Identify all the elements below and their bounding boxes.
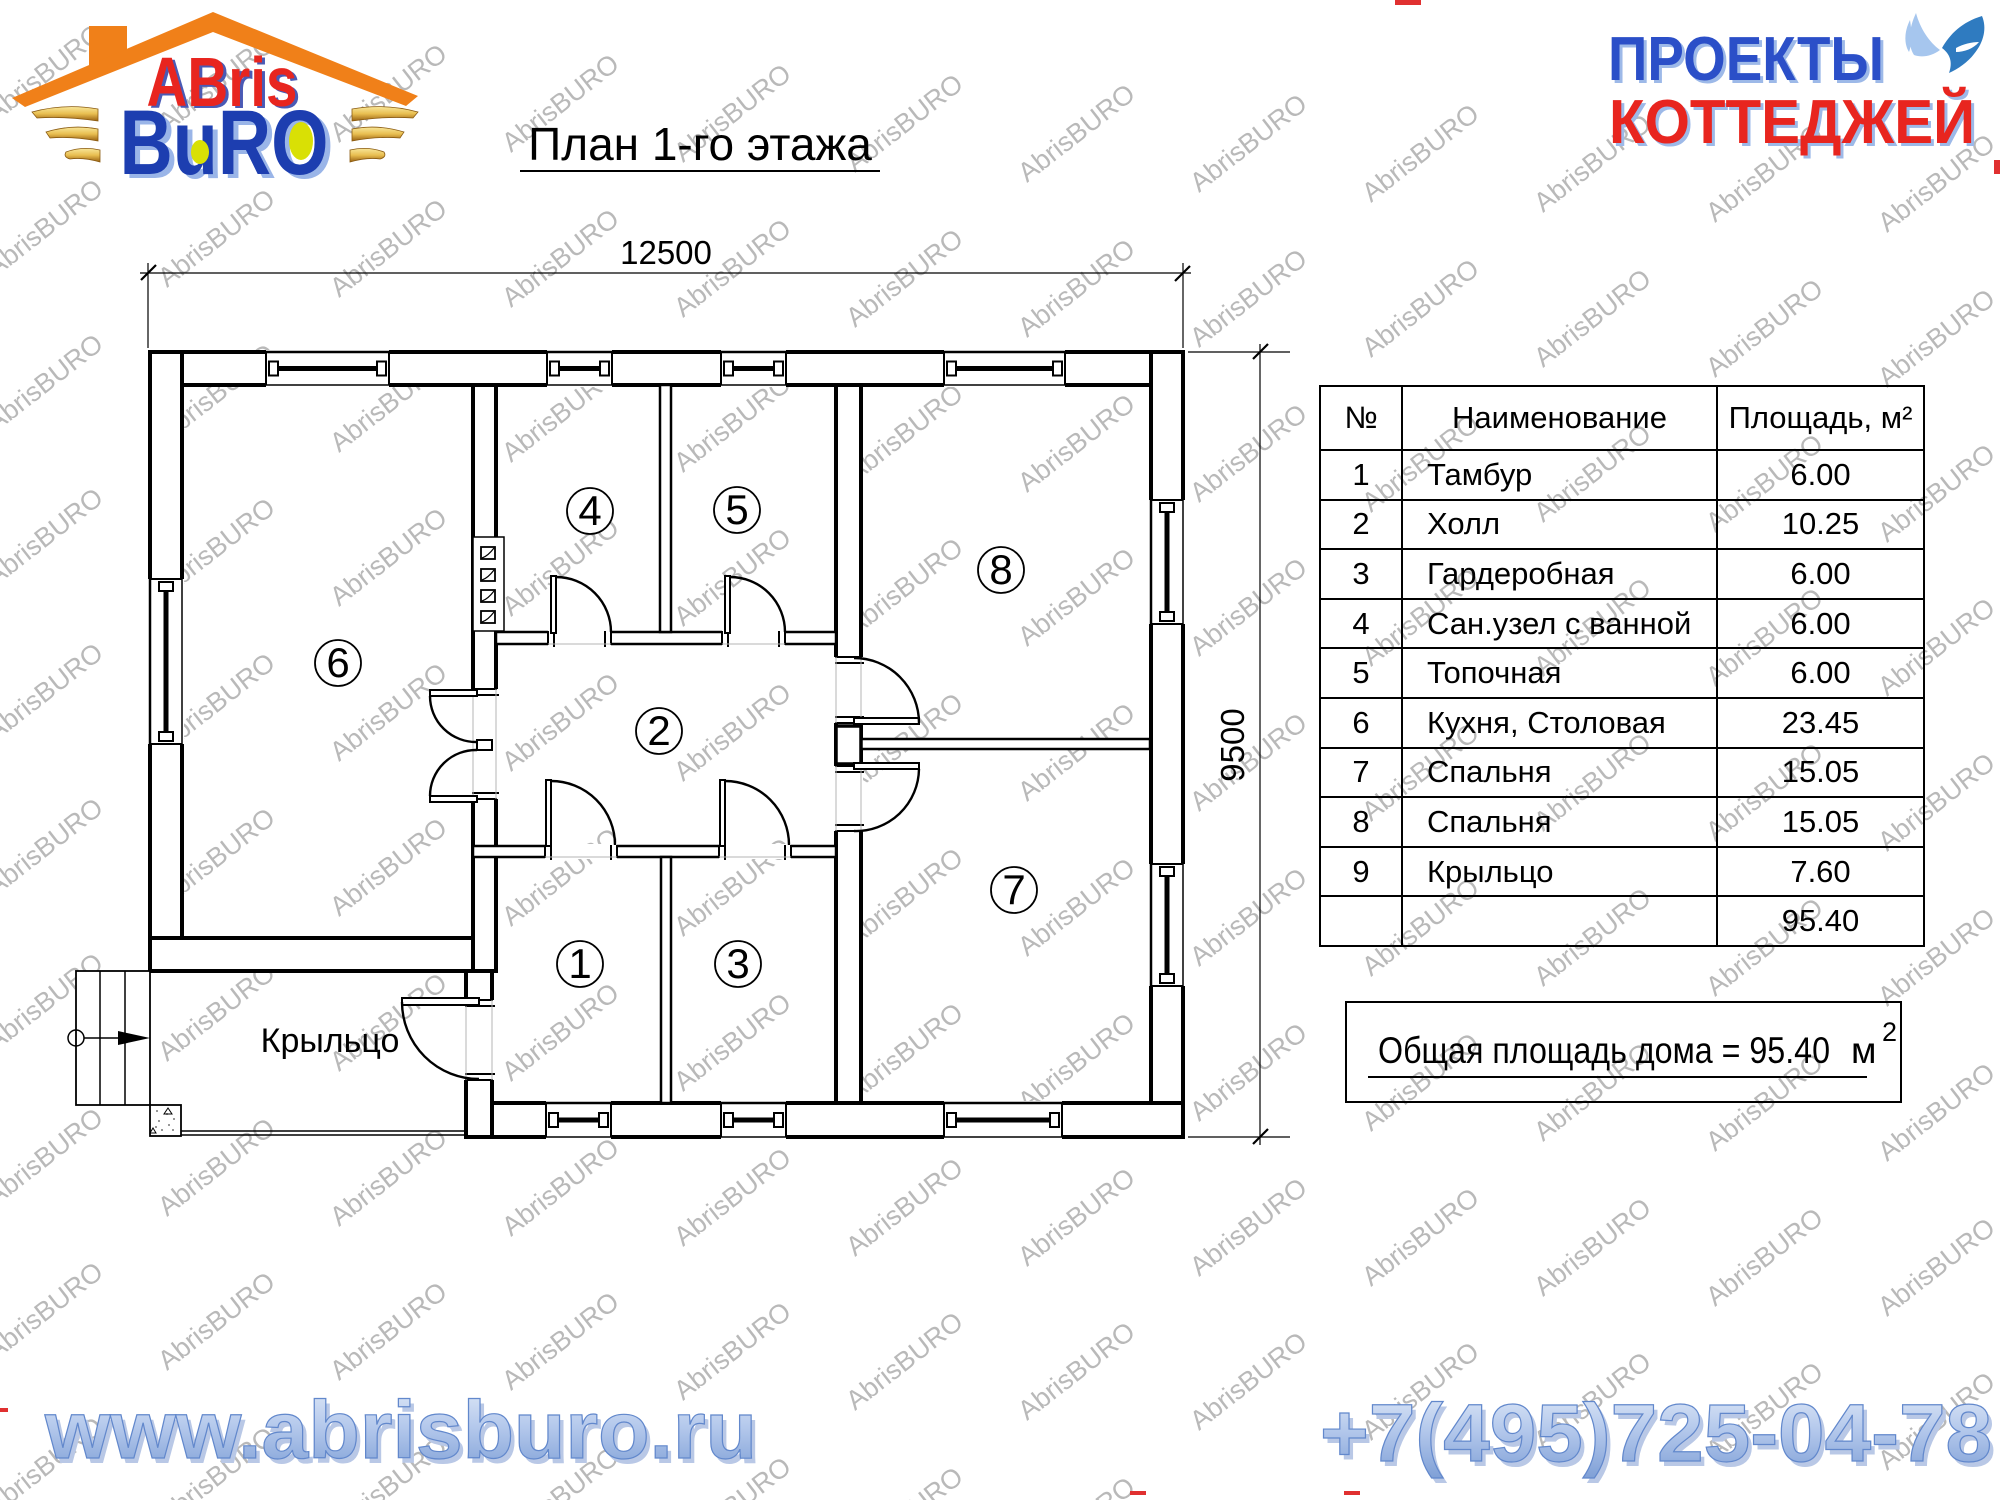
svg-text:м: м [1851, 1030, 1876, 1071]
svg-text:Общая площадь дома = 95.40: Общая площадь дома = 95.40 [1378, 1030, 1830, 1071]
svg-text:2: 2 [1882, 1017, 1897, 1047]
